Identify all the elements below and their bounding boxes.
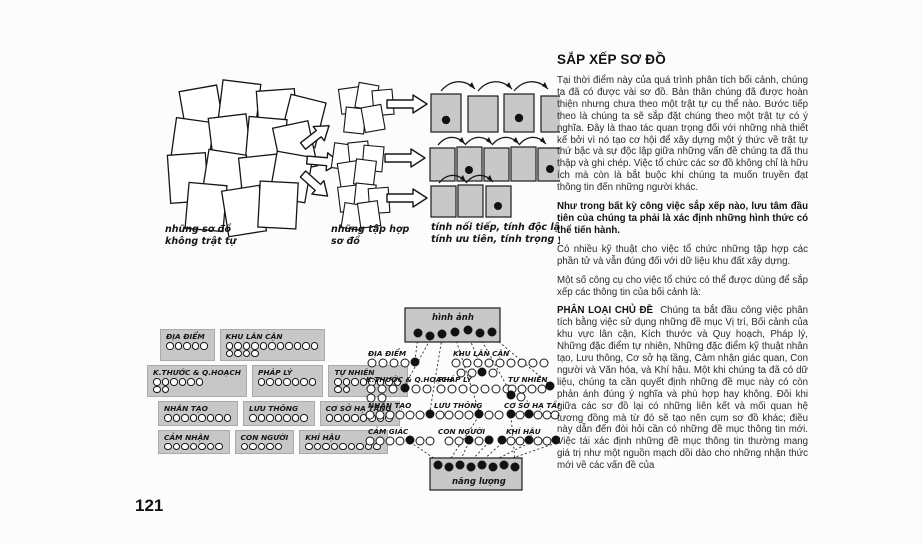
network-label-dia-diem: ĐỊA ĐIỂM xyxy=(367,348,407,358)
category-dots xyxy=(153,386,241,394)
dot-circle xyxy=(173,443,181,451)
dot-circle xyxy=(249,443,257,451)
dot-circle xyxy=(292,378,300,386)
network-dots-cam-giac xyxy=(366,436,434,445)
dot-circle xyxy=(266,443,274,451)
caption-groups-line2: sơ đồ xyxy=(331,236,360,247)
dot-circle xyxy=(266,378,274,386)
network-label-khi-hau: KHÍ HẬU xyxy=(506,427,541,436)
dot-circle xyxy=(207,414,215,422)
dot-circle xyxy=(300,378,308,386)
dot-circle xyxy=(268,342,276,350)
dot-circle xyxy=(243,350,251,358)
network-dots-con-nguoi xyxy=(445,436,493,445)
category-label: CON NGƯỜI xyxy=(241,433,289,442)
dot-circle xyxy=(300,414,308,422)
dot-circle xyxy=(200,342,208,350)
dot-circle xyxy=(215,414,223,422)
category-box: ĐỊA ĐIỂM xyxy=(160,329,215,361)
section-body: Chúng ta bắt đầu công việc phân tích bằn… xyxy=(557,305,808,471)
network-dots-nhan-tao xyxy=(366,410,444,419)
dot-circle xyxy=(285,342,293,350)
dot-circle xyxy=(266,414,274,422)
dot-circle xyxy=(179,378,187,386)
dot-circle xyxy=(153,378,161,386)
category-dots xyxy=(166,342,209,350)
network-dots-tu-nhien xyxy=(507,382,554,401)
category-box: KHU LÂN CẬN xyxy=(220,329,326,361)
dot-circle xyxy=(198,414,206,422)
category-box: K.THƯỚC & Q.HOẠCH xyxy=(147,365,247,397)
dot-circle xyxy=(292,414,300,422)
dot-circle xyxy=(173,414,181,422)
category-label: KHU LÂN CẬN xyxy=(226,332,320,341)
dot-circle xyxy=(207,443,215,451)
category-label: LƯU THÔNG xyxy=(249,404,309,413)
caption-pile-line2: không trật tự xyxy=(165,236,238,247)
network-dots-phap-ly xyxy=(437,385,511,393)
dot-circle xyxy=(311,342,319,350)
category-row: CẢM NHẬNCON NGƯỜIKHÍ HẬU xyxy=(158,430,366,455)
dot-circle xyxy=(224,414,232,422)
category-box: LƯU THÔNG xyxy=(243,401,315,426)
dot-circle xyxy=(243,342,251,350)
dot-circle xyxy=(190,443,198,451)
dot-circle xyxy=(162,386,170,394)
dot-circle xyxy=(226,342,234,350)
dot-circle xyxy=(196,378,204,386)
category-box: PHÁP LÝ xyxy=(252,365,324,397)
network-dots-kthuoc xyxy=(367,384,431,402)
category-label: NHÂN TẠO xyxy=(164,404,232,413)
dot-circle xyxy=(162,378,170,386)
dot-circle xyxy=(234,342,242,350)
dot-circle xyxy=(164,414,172,422)
dot-circle xyxy=(234,350,242,358)
category-dots xyxy=(164,414,232,422)
network-label-nhan-tao: NHÂN TẠO xyxy=(368,401,411,410)
dot-circle xyxy=(348,443,356,451)
dot-circle xyxy=(226,350,234,358)
network-diagram: hình ảnh ĐỊA ĐIỂM KHU LÂN CẬN K.THƯỚC & … xyxy=(358,296,560,510)
dot-circle xyxy=(183,342,191,350)
category-label: ĐỊA ĐIỂM xyxy=(166,332,209,341)
dot-circle xyxy=(181,443,189,451)
network-top-box-label: hình ảnh xyxy=(432,312,474,323)
dot-circle xyxy=(175,342,183,350)
dot-circle xyxy=(249,414,257,422)
category-dots xyxy=(226,342,320,350)
dot-circle xyxy=(283,378,291,386)
network-label-con-nguoi: CON NGƯỜI xyxy=(438,427,485,436)
dot-circle xyxy=(343,414,351,422)
network-dots-co-so-ha-tang xyxy=(507,410,559,419)
dot-circle xyxy=(334,414,342,422)
category-dots xyxy=(153,378,241,386)
dot-circle xyxy=(302,342,310,350)
category-box: CẢM NHẬN xyxy=(158,430,230,455)
network-label-luu-thong: LƯU THÔNG xyxy=(434,401,482,410)
ordered-rows xyxy=(430,82,560,217)
paragraph-4: Một số công cụ cho việc tổ chức có thể đ… xyxy=(557,275,808,299)
network-label-cam-giac: CẢM GIÁC xyxy=(368,426,409,436)
dot-circle xyxy=(331,443,339,451)
category-dots xyxy=(249,414,309,422)
dot-circle xyxy=(251,342,259,350)
category-dots xyxy=(241,443,289,451)
network-label-co-so-ha-tang: CƠ SỞ HẠ TẦNG xyxy=(504,400,560,410)
network-dots-khi-hau xyxy=(498,436,560,445)
dot-circle xyxy=(334,378,342,386)
category-row: K.THƯỚC & Q.HOẠCHPHÁP LÝTỰ NHIÊN xyxy=(147,365,366,397)
dot-circle xyxy=(322,443,330,451)
dot-circle xyxy=(215,443,223,451)
dot-circle xyxy=(258,378,266,386)
category-dots xyxy=(164,443,224,451)
dot-circle xyxy=(251,350,259,358)
network-dots-dia-diem xyxy=(368,358,419,367)
dot-circle xyxy=(275,414,283,422)
sorting-diagram: những sơ đồ không trật tự những tập hợp … xyxy=(135,58,560,258)
dot-circle xyxy=(283,414,291,422)
network-links-top xyxy=(405,335,549,411)
dot-circle xyxy=(334,386,342,394)
category-box: NHÂN TẠO xyxy=(158,401,238,426)
dot-circle xyxy=(187,378,195,386)
section-heading: PHÂN LOẠI CHỦ ĐỀ xyxy=(557,305,653,316)
dot-circle xyxy=(326,414,334,422)
dot-circle xyxy=(190,414,198,422)
category-row: NHÂN TẠOLƯU THÔNGCƠ SỞ HẠ TẦNG xyxy=(158,401,366,426)
dot-circle xyxy=(258,414,266,422)
paragraph-3: Có nhiều kỹ thuật cho việc tổ chức những… xyxy=(557,244,808,268)
category-box: CON NGƯỜI xyxy=(235,430,295,455)
article-title: SẮP XẾP SƠ ĐỒ xyxy=(557,52,808,67)
network-label-phap-ly: PHÁP LÝ xyxy=(438,375,473,384)
category-label: PHÁP LÝ xyxy=(258,368,318,377)
category-dots xyxy=(226,350,320,358)
article-column: SẮP XẾP SƠ ĐỒ Tại thời điểm này của quá … xyxy=(557,52,808,479)
caption-ordered-line2: tính ưu tiên, tính trọng yếu xyxy=(431,234,560,245)
page-number: 121 xyxy=(135,496,163,516)
network-label-khu-lan-can: KHU LÂN CẬN xyxy=(453,349,509,358)
dot-circle xyxy=(309,378,317,386)
dot-circle xyxy=(181,414,189,422)
dot-circle xyxy=(241,443,249,451)
dot-circle xyxy=(294,342,302,350)
paper-pile xyxy=(167,80,326,237)
network-bottom-box-label: năng lượng xyxy=(452,477,506,487)
dot-circle xyxy=(343,386,351,394)
caption-groups-line1: những tập hợp xyxy=(331,224,410,235)
category-dots xyxy=(258,378,318,386)
dot-circle xyxy=(153,386,161,394)
dot-circle xyxy=(305,443,313,451)
dot-circle xyxy=(339,443,347,451)
network-dots-luu-thong xyxy=(445,410,503,419)
dot-circle xyxy=(192,342,200,350)
dot-circle xyxy=(275,443,283,451)
dot-circle xyxy=(343,378,351,386)
dot-circle xyxy=(170,378,178,386)
category-row: ĐỊA ĐIỂMKHU LÂN CẬN xyxy=(160,329,366,361)
network-label-tu-nhien: TỰ NHIÊN xyxy=(508,375,547,384)
dot-circle xyxy=(166,342,174,350)
dot-circle xyxy=(277,342,285,350)
paragraph-1: Tại thời điểm này của quá trình phân tíc… xyxy=(557,75,808,194)
caption-pile-line1: những sơ đồ xyxy=(165,224,231,235)
category-label: K.THƯỚC & Q.HOẠCH xyxy=(153,368,241,377)
dot-circle xyxy=(260,342,268,350)
dot-circle xyxy=(314,443,322,451)
paragraph-5: PHÂN LOẠI CHỦ ĐỀ Chúng ta bắt đầu công v… xyxy=(557,305,808,472)
category-label: CẢM NHẬN xyxy=(164,433,224,442)
dot-circle xyxy=(258,443,266,451)
paragraph-2-bold: Như trong bất kỳ công việc sắp xếp nào, … xyxy=(557,201,808,237)
dot-circle xyxy=(275,378,283,386)
dot-circle xyxy=(164,443,172,451)
category-grid: ĐỊA ĐIỂMKHU LÂN CẬNK.THƯỚC & Q.HOẠCHPHÁP… xyxy=(142,329,366,458)
caption-ordered-line1: tính nối tiếp, tính độc lập xyxy=(431,222,560,233)
dot-circle xyxy=(198,443,206,451)
